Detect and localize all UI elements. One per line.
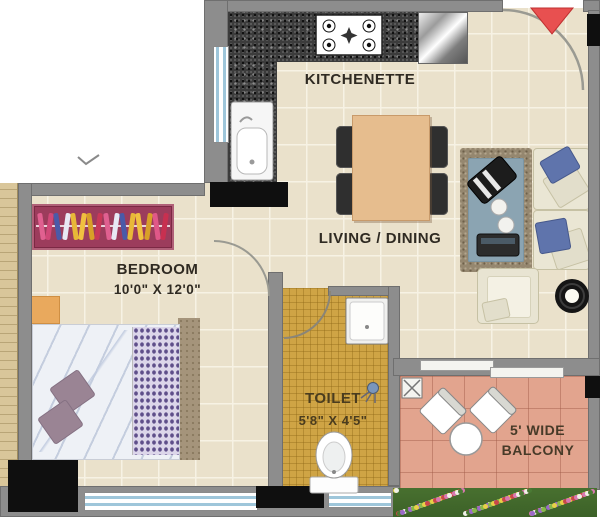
balcony-label-line2: BALCONY (488, 443, 588, 458)
balcony-table (450, 423, 482, 455)
gas-stove (316, 15, 382, 55)
wc-toilet (310, 432, 358, 493)
toilet-door-arc (284, 291, 330, 338)
tv-bench (477, 234, 519, 256)
toilet-dimensions: 5'8" X 4'5" (278, 414, 388, 428)
balcony-label-line1: 5' WIDE (495, 423, 580, 438)
kitchenette-label: KITCHENETTE (280, 72, 440, 89)
bedroom-dimensions: 10'0" X 12'0" (85, 283, 230, 298)
wash-basin (346, 298, 388, 344)
lounge-chair (466, 155, 518, 205)
floor-drain-icon (402, 378, 422, 398)
kitchen-sink (231, 102, 273, 180)
north-tick-icon (78, 155, 99, 164)
decor-plate (498, 217, 514, 233)
round-side-table (555, 279, 589, 313)
living-dining-label: LIVING / DINING (300, 231, 460, 248)
bedroom-label: BEDROOM (85, 262, 230, 279)
entrance-marker (531, 8, 573, 34)
toilet-label: TOILET (283, 391, 383, 408)
floor-plan: KITCHENETTE LIVING / DINING BEDROOM 10'0… (0, 0, 600, 517)
decor-plate (491, 199, 507, 215)
